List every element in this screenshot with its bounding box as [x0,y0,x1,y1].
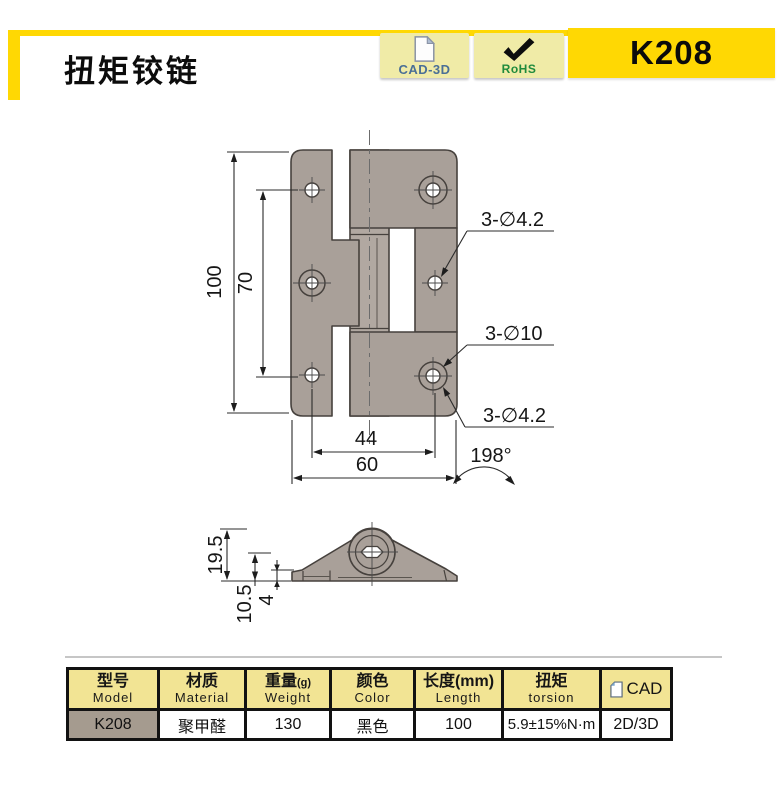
col-header-model: 型号 Model [69,670,160,708]
dim-overall-width: 60 [356,454,378,476]
col-header-model-en: Model [93,691,133,705]
spec-table-header-row: 型号 Model 材质 Material 重量(g) Weight 颜色 Col… [69,670,670,711]
document-icon [414,36,435,62]
col-header-length-en: Length [436,691,482,705]
dim-hole-pitch-vertical: 70 [235,272,257,294]
spec-table: 型号 Model 材质 Material 重量(g) Weight 颜色 Col… [66,667,673,741]
dim-side-leaf-thickness: 4 [256,594,278,605]
cad-3d-badge[interactable]: CAD-3D [380,33,469,78]
col-header-material: 材质 Material [160,670,247,708]
cell-material: 聚甲醛 [160,711,247,738]
cell-torsion: 5.9±15%N·m [504,711,602,738]
dim-open-angle: 198° [470,445,511,467]
col-header-length: 长度(mm) Length [416,670,504,708]
table-divider-line [65,656,722,658]
hole-callouts: 3-∅4.2 3-∅10 3-∅4.2 [441,209,554,427]
document-icon [610,681,623,698]
col-header-weight: 重量(g) Weight [247,670,332,708]
model-code: K208 [630,34,713,72]
spec-table-data-row: K208 聚甲醛 130 黑色 100 5.9±15%N·m 2D/3D [69,711,670,738]
cell-length: 100 [416,711,504,738]
cell-cad-formats[interactable]: 2D/3D [602,711,670,738]
dim-side-total-height: 19.5 [205,536,227,575]
col-header-material-cn: 材质 [186,673,218,690]
rohs-badge-label: RoHS [502,63,537,75]
cell-weight: 130 [247,711,332,738]
hinge-side-view [292,522,457,586]
cell-color: 黑色 [332,711,416,738]
col-header-cad: CAD [602,670,670,708]
col-header-torsion-en: torsion [528,691,574,705]
callout-dia-10: 3-∅10 [485,323,542,345]
col-header-model-cn: 型号 [97,673,129,690]
checkmark-icon [501,37,537,62]
rohs-badge[interactable]: RoHS [474,33,564,78]
dim-hole-pitch-horizontal: 44 [355,428,377,450]
cell-model: K208 [69,711,160,738]
col-header-weight-en: Weight [265,691,311,705]
dim-overall-height: 100 [204,265,226,298]
side-view-dimensions: 19.5 10.5 4 [205,529,294,623]
col-header-weight-cn: 重量(g) [265,673,311,690]
col-header-material-en: Material [175,691,229,705]
cad-3d-badge-label: CAD-3D [398,63,450,76]
col-header-torsion: 扭矩 torsion [504,670,602,708]
col-header-color-en: Color [354,691,390,705]
opening-angle: 198° [453,445,515,485]
technical-drawing: 100 70 44 60 [0,110,780,660]
callout-dia-4-2-bottom: 3-∅4.2 [483,405,546,427]
col-header-cad-label: CAD [627,680,663,698]
dim-side-pivot-height: 10.5 [234,585,256,624]
col-header-length-cn: 长度(mm) [423,673,494,690]
model-code-block: K208 [568,28,775,78]
col-header-torsion-cn: 扭矩 [535,673,567,690]
col-header-color: 颜色 Color [332,670,416,708]
header-accent-bar [8,30,20,100]
callout-dia-4-2-top: 3-∅4.2 [481,209,544,231]
col-header-color-cn: 颜色 [356,673,388,690]
catalog-page: 扭矩铰链 CAD-3D RoHS K208 [0,0,780,791]
hinge-right-leaf-bottom [350,332,457,416]
hinge-right-leaf-top [350,150,457,228]
page-title: 扭矩铰链 [64,46,200,91]
